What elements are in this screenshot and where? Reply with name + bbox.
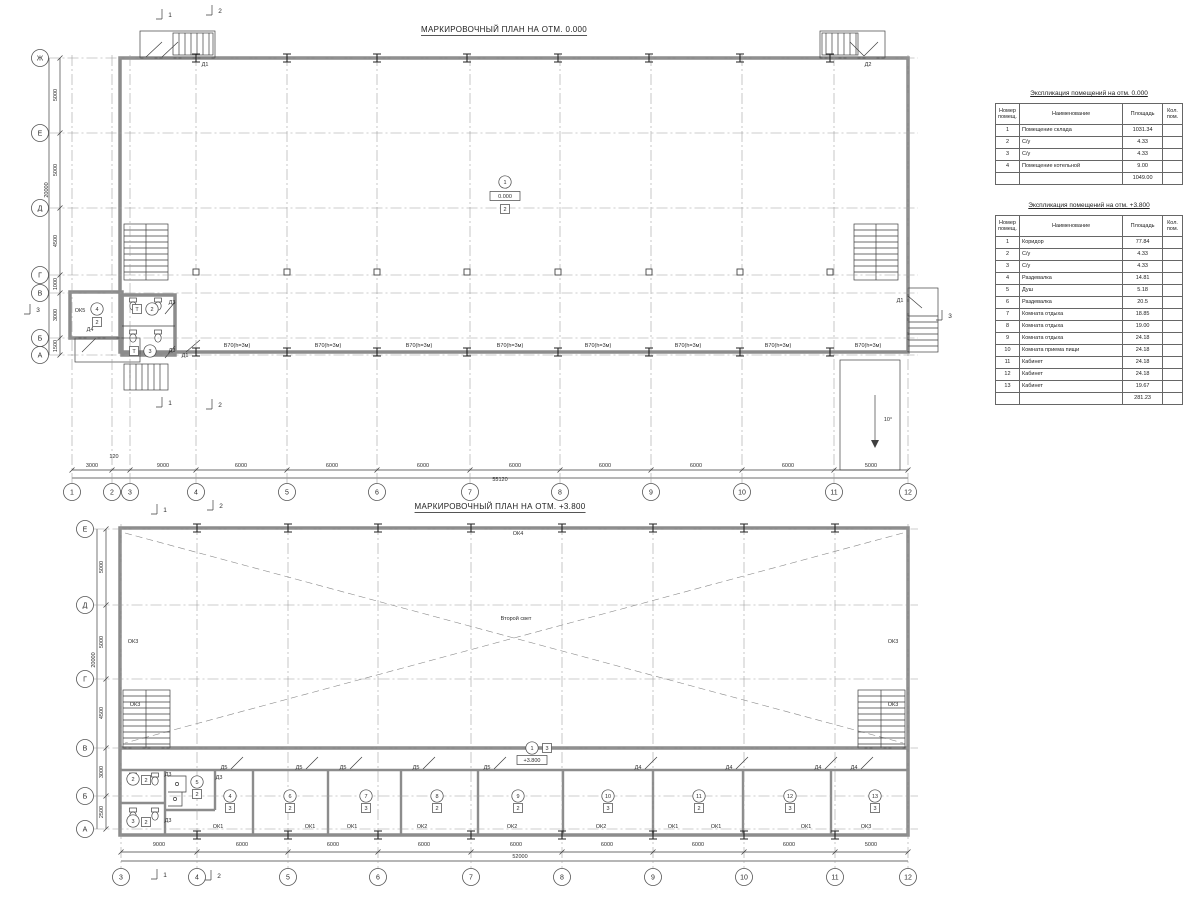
annotation: В70(h=3м) <box>585 343 612 349</box>
dim-label: 6000 <box>601 842 613 848</box>
type-label: 2 <box>195 792 198 798</box>
axis-label-Е: Е <box>83 527 88 534</box>
drawing-sheet: МАРКИРОВОЧНЫЙ ПЛАН НА ОТМ. 0.000 МАРКИРО… <box>0 0 1200 900</box>
type-label: 3 <box>228 806 231 812</box>
annotation: ОК4 <box>513 531 524 537</box>
annotation: Д4 <box>815 765 822 771</box>
table-cell: 9 <box>996 333 1020 345</box>
table-header: Площадь <box>1123 104 1163 125</box>
table-cell: Комната отдыха <box>1019 309 1122 321</box>
table-cell: 9.00 <box>1123 161 1163 173</box>
axis-label-11: 11 <box>830 490 837 497</box>
table-cell <box>1163 285 1183 297</box>
table-cell <box>1163 381 1183 393</box>
annotation: Д5 <box>413 765 420 771</box>
plan1-geometry <box>49 31 938 478</box>
table-cell: 5 <box>996 285 1020 297</box>
axis-label-7: 7 <box>468 490 472 497</box>
section-mark: 3 <box>948 313 952 320</box>
annotation: ОК1 <box>668 824 679 830</box>
table-row: 11Кабинет24.18 <box>996 357 1183 369</box>
axis-label-12: 12 <box>904 875 912 882</box>
table-header: Номер помещ. <box>996 216 1020 237</box>
axis-label-10: 10 <box>738 490 746 497</box>
annotation: Д3 <box>216 775 223 781</box>
annotation: ОК3 <box>861 824 872 830</box>
dim-label: 5000 <box>865 463 877 469</box>
table-cell <box>1163 149 1183 161</box>
table-cell <box>1163 309 1183 321</box>
table-cell <box>1163 321 1183 333</box>
axis-label-А: А <box>83 827 88 834</box>
axis-label-Д: Д <box>83 603 88 610</box>
room-tag: 8 <box>435 794 438 800</box>
dim-label: 6000 <box>509 463 521 469</box>
room-tag: 3 <box>131 819 134 825</box>
dim-label: 9000 <box>157 463 169 469</box>
table-header: Номер помещ. <box>996 104 1020 125</box>
table-cell: 1049.00 <box>1123 173 1163 185</box>
explication-table-0000: Экспликация помещений на отм. 0.000Номер… <box>995 90 1183 185</box>
type-label: 3 <box>606 806 609 812</box>
table-cell: 19.67 <box>1123 381 1163 393</box>
table-row: 2С/у4.33 <box>996 249 1183 261</box>
dim-label: 6000 <box>782 463 794 469</box>
table-header: Наименование <box>1019 104 1122 125</box>
table-cell: 24.18 <box>1123 369 1163 381</box>
table-header: Наименование <box>1019 216 1122 237</box>
type-label: 3 <box>545 746 548 752</box>
table-cell <box>1163 125 1183 137</box>
section-mark-flag <box>205 870 211 880</box>
table-cell <box>1163 393 1183 405</box>
type-label: 2 <box>144 778 147 784</box>
annotation: ОК3 <box>888 702 899 708</box>
table-cell <box>1163 357 1183 369</box>
axis-label-Б: Б <box>38 336 43 343</box>
annotation: В70(h=3м) <box>765 343 792 349</box>
axis-label-4: 4 <box>195 875 199 882</box>
annotation: В70(h=3м) <box>855 343 882 349</box>
table-title: Экспликация помещений на отм. 0.000 <box>995 90 1183 97</box>
dim-label: 4500 <box>99 707 105 719</box>
column-marker <box>737 269 743 275</box>
table-cell: Помещение котельной <box>1019 161 1122 173</box>
table-cell <box>1163 161 1183 173</box>
table-cell: Душ <box>1019 285 1122 297</box>
section-mark: 1 <box>168 400 172 407</box>
table-cell <box>1163 369 1183 381</box>
table-cell: 11 <box>996 357 1020 369</box>
table-row: 2С/у4.33 <box>996 137 1183 149</box>
table-row: 9Комната отдыха24.18 <box>996 333 1183 345</box>
axis-label-Е: Е <box>38 131 43 138</box>
axis-label-Г: Г <box>83 677 87 684</box>
room-tag: 3 <box>148 349 151 355</box>
annotation: Д3 <box>165 818 172 824</box>
dim-label: 6000 <box>326 463 338 469</box>
explication-table: Номер помещ.НаименованиеПлощадьКол. пом.… <box>995 215 1183 405</box>
dim-label: 55120 <box>492 477 507 483</box>
table-cell: 4.33 <box>1123 137 1163 149</box>
annotation: В70(h=3м) <box>675 343 702 349</box>
table-cell <box>1163 173 1183 185</box>
annotation: Д1 <box>202 62 209 68</box>
annotation: ОК3 <box>130 702 141 708</box>
table-row: 10Комната приема пищи24.18 <box>996 345 1183 357</box>
axis-label-Б: Б <box>83 794 88 801</box>
type-label: 3 <box>788 806 791 812</box>
type-label: 3 <box>364 806 367 812</box>
table-cell: 77.84 <box>1123 237 1163 249</box>
table-row: 1Коридор77.84 <box>996 237 1183 249</box>
room-tag: 1 <box>530 746 533 752</box>
table-cell: Раздевалка <box>1019 273 1122 285</box>
room-tag: 1 <box>503 180 506 186</box>
dim-label: 3000 <box>86 463 98 469</box>
table-cell: 2 <box>996 249 1020 261</box>
section-mark: 1 <box>163 507 167 514</box>
table-cell: Кабинет <box>1019 369 1122 381</box>
table-row: 13Кабинет19.67 <box>996 381 1183 393</box>
dim-label: 6000 <box>327 842 339 848</box>
dim-label: 20000 <box>91 652 97 667</box>
dim-label: 120 <box>109 454 118 460</box>
table-cell: 4.33 <box>1123 249 1163 261</box>
annotation: Д1 <box>897 298 904 304</box>
annotation: Второй свет <box>501 615 532 622</box>
axis-label-2: 2 <box>110 490 114 497</box>
type-label: 3 <box>873 806 876 812</box>
dim-label: 1500 <box>53 340 59 352</box>
type-label: 2 <box>503 207 506 213</box>
table-title: Экспликация помещений на отм. +3.800 <box>995 202 1183 209</box>
annotation: Д3 <box>165 772 172 778</box>
table-cell: 4.33 <box>1123 149 1163 161</box>
dim-label: 6000 <box>236 842 248 848</box>
room-tag: 9 <box>516 794 519 800</box>
table-cell: 3 <box>996 149 1020 161</box>
axis-label-9: 9 <box>649 490 653 497</box>
table-cell <box>1019 173 1122 185</box>
annotation: В70(h=3м) <box>315 343 342 349</box>
table-cell: С/у <box>1019 137 1122 149</box>
section-mark-flag <box>206 5 212 15</box>
table-cell: 6 <box>996 297 1020 309</box>
section-mark-flag <box>156 397 162 407</box>
axis-label-6: 6 <box>375 490 379 497</box>
dim-label: 6000 <box>783 842 795 848</box>
annotation: ОК1 <box>213 824 224 830</box>
table-cell: Раздевалка <box>1019 297 1122 309</box>
annotation: ОК1 <box>347 824 358 830</box>
table-row: 4Раздевалка14.81 <box>996 273 1183 285</box>
axis-label-8: 8 <box>558 490 562 497</box>
table-cell: С/у <box>1019 261 1122 273</box>
section-mark: 3 <box>36 307 40 314</box>
table-row: 3С/у4.33 <box>996 261 1183 273</box>
annotation: В70(h=3м) <box>406 343 433 349</box>
axis-label-3: 3 <box>128 490 132 497</box>
door-leaf <box>350 757 362 769</box>
type-label: 2 <box>697 806 700 812</box>
room-tag: 10 <box>605 794 611 800</box>
annotation: Д2 <box>865 62 872 68</box>
table-cell <box>1163 237 1183 249</box>
type-label: 2 <box>95 320 98 326</box>
annotation: ОК1 <box>801 824 812 830</box>
annotation: ОК5 <box>75 308 86 314</box>
column-marker <box>827 269 833 275</box>
annotation: ОК3 <box>888 639 899 645</box>
table-row: 4Помещение котельной9.00 <box>996 161 1183 173</box>
table-cell: 18.85 <box>1123 309 1163 321</box>
table-cell: 2 <box>996 137 1020 149</box>
section-mark: 1 <box>168 12 172 19</box>
axis-label-В: В <box>38 291 43 298</box>
axis-label-5: 5 <box>286 875 290 882</box>
room-tag: 4 <box>95 307 98 313</box>
dim-label: 6000 <box>235 463 247 469</box>
annotation: Д1 <box>182 353 189 359</box>
table-cell: 20.5 <box>1123 297 1163 309</box>
section-mark-flag <box>24 304 30 314</box>
annotation: Д3 <box>169 348 176 354</box>
type-label: 2 <box>516 806 519 812</box>
table-cell: 8 <box>996 321 1020 333</box>
table-cell: 24.18 <box>1123 333 1163 345</box>
section-mark-flag <box>156 9 162 19</box>
type-label: 2 <box>144 820 147 826</box>
table-cell: 4.33 <box>1123 261 1163 273</box>
section-mark-flag <box>936 310 942 320</box>
type-label: 2 <box>288 806 291 812</box>
door-leaf <box>494 757 506 769</box>
dim-label: 9000 <box>153 842 165 848</box>
dim-label: 3000 <box>99 766 105 778</box>
dim-label: 5000 <box>99 561 105 573</box>
door-leaf <box>736 757 748 769</box>
plan2-annotations: 3456789101112ЕДГВБА900060006000600060006… <box>77 500 919 886</box>
table-row: 281.23 <box>996 393 1183 405</box>
table-cell <box>1163 297 1183 309</box>
axis-label-Д: Д <box>38 206 43 213</box>
annotation: Д4 <box>635 765 642 771</box>
table-cell: С/у <box>1019 249 1122 261</box>
table-cell <box>1163 273 1183 285</box>
dim-label: 4500 <box>53 235 59 247</box>
explication-table: Номер помещ.НаименованиеПлощадьКол. пом.… <box>995 103 1183 185</box>
dim-label: 2500 <box>99 806 105 818</box>
dim-label: 3000 <box>53 309 59 321</box>
section-mark: 2 <box>219 503 223 510</box>
annotation: Д3 <box>169 300 176 306</box>
annotation: Д5 <box>221 765 228 771</box>
column-marker <box>374 269 380 275</box>
table-cell: 14.81 <box>1123 273 1163 285</box>
dim-label: 5000 <box>865 842 877 848</box>
room-tag: 6 <box>288 794 291 800</box>
axis-label-9: 9 <box>651 875 655 882</box>
section-mark-flag <box>207 500 213 510</box>
room-tag: 5 <box>195 780 198 786</box>
room-tag: 4 <box>228 794 231 800</box>
table-row: 1Помещение склада1031.34 <box>996 125 1183 137</box>
plan1-annotations: 123456789101112ЖЕДГВБА300012090006000600… <box>24 5 952 501</box>
dim-label: 5000 <box>53 164 59 176</box>
table-cell: 4 <box>996 273 1020 285</box>
room-tag: 7 <box>364 794 367 800</box>
door-leaf <box>231 757 243 769</box>
table-cell: 1 <box>996 125 1020 137</box>
room-tag: 2 <box>131 777 134 783</box>
annotation: ОК1 <box>711 824 722 830</box>
room-tag: 13 <box>872 794 878 800</box>
column-marker <box>284 269 290 275</box>
axis-label-5: 5 <box>285 490 289 497</box>
table-cell <box>1163 249 1183 261</box>
table-cell <box>996 173 1020 185</box>
axis-label-1: 1 <box>70 490 74 497</box>
explication-table-3800: Экспликация помещений на отм. +3.800Номе… <box>995 202 1183 405</box>
table-cell: Коридор <box>1019 237 1122 249</box>
table-cell: 5.18 <box>1123 285 1163 297</box>
section-mark: 2 <box>218 402 222 409</box>
annotation: Д5 <box>484 765 491 771</box>
section-mark-flag <box>151 869 157 879</box>
dim-label: 5000 <box>99 636 105 648</box>
room-tag: 12 <box>787 794 793 800</box>
table-row: 1049.00 <box>996 173 1183 185</box>
dim-label: 6000 <box>692 842 704 848</box>
annotation: В70(h=3м) <box>497 343 524 349</box>
axis-label-6: 6 <box>376 875 380 882</box>
door-leaf <box>306 757 318 769</box>
dim-label: 5000 <box>53 89 59 101</box>
dim-label: 1000 <box>53 278 59 290</box>
column-marker <box>464 269 470 275</box>
axis-label-А: А <box>38 353 43 360</box>
door-leaf <box>423 757 435 769</box>
column-marker <box>646 269 652 275</box>
table-cell: Комната отдыха <box>1019 321 1122 333</box>
table-row: 6Раздевалка20.5 <box>996 297 1183 309</box>
table-cell: 1 <box>996 237 1020 249</box>
annotation: Д4 <box>726 765 733 771</box>
section-mark-flag <box>206 399 212 409</box>
table-row: 7Комната отдыха18.85 <box>996 309 1183 321</box>
table-cell: 10 <box>996 345 1020 357</box>
table-cell <box>1019 393 1122 405</box>
level-label: +3.800 <box>524 758 541 764</box>
table-cell: 7 <box>996 309 1020 321</box>
table-cell: 281.23 <box>1123 393 1163 405</box>
type-label: 2 <box>435 806 438 812</box>
table-cell: 24.18 <box>1123 357 1163 369</box>
table-cell: 24.18 <box>1123 345 1163 357</box>
table-cell: Комната отдыха <box>1019 333 1122 345</box>
column-marker <box>555 269 561 275</box>
section-mark: 2 <box>217 873 221 880</box>
axis-label-10: 10 <box>740 875 748 882</box>
table-cell <box>1163 137 1183 149</box>
annotation: Д5 <box>340 765 347 771</box>
annotation: 10° <box>884 417 892 423</box>
axis-label-4: 4 <box>194 490 198 497</box>
table-cell: 4 <box>996 161 1020 173</box>
table-row: 3С/у4.33 <box>996 149 1183 161</box>
table-row: 12Кабинет24.18 <box>996 369 1183 381</box>
annotation: Д4 <box>87 327 94 333</box>
table-cell: Кабинет <box>1019 357 1122 369</box>
annotation: ОК2 <box>417 824 428 830</box>
room-tag: 2 <box>150 307 153 313</box>
table-cell: Комната приема пищи <box>1019 345 1122 357</box>
axis-label-8: 8 <box>560 875 564 882</box>
annotation: Д4 <box>851 765 858 771</box>
door-leaf <box>645 757 657 769</box>
section-mark: 1 <box>163 872 167 879</box>
table-cell: 13 <box>996 381 1020 393</box>
dim-label: 6000 <box>418 842 430 848</box>
table-cell <box>996 393 1020 405</box>
section-mark: 2 <box>218 8 222 15</box>
level-label: 0.000 <box>498 194 512 200</box>
table-cell: 19.00 <box>1123 321 1163 333</box>
table-row: 5Душ5.18 <box>996 285 1183 297</box>
axis-label-В: В <box>83 746 88 753</box>
axis-label-7: 7 <box>469 875 473 882</box>
annotation: ОК1 <box>305 824 316 830</box>
dim-label: 6000 <box>599 463 611 469</box>
dim-label: 52000 <box>512 854 527 860</box>
table-cell: Кабинет <box>1019 381 1122 393</box>
dim-label: 6000 <box>510 842 522 848</box>
dim-label: 6000 <box>690 463 702 469</box>
table-cell: 12 <box>996 369 1020 381</box>
table-cell: 1031.34 <box>1123 125 1163 137</box>
room-tag: 11 <box>696 794 702 800</box>
axis-label-12: 12 <box>904 490 912 497</box>
axis-label-Г: Г <box>38 273 42 280</box>
column-marker <box>193 269 199 275</box>
table-header: Кол. пом. <box>1163 104 1183 125</box>
table-cell: 3 <box>996 261 1020 273</box>
annotation: ОК3 <box>128 639 139 645</box>
table-cell: Помещение склада <box>1019 125 1122 137</box>
section-mark-flag <box>151 504 157 514</box>
annotation: Д5 <box>296 765 303 771</box>
axis-label-Ж: Ж <box>37 56 44 63</box>
table-cell <box>1163 333 1183 345</box>
axis-label-11: 11 <box>831 875 838 882</box>
annotation: ОК2 <box>596 824 607 830</box>
axis-label-3: 3 <box>119 875 123 882</box>
door-leaf <box>861 757 873 769</box>
dim-label: 20000 <box>44 182 50 197</box>
table-header: Кол. пом. <box>1163 216 1183 237</box>
table-cell <box>1163 345 1183 357</box>
table-header: Площадь <box>1123 216 1163 237</box>
dim-label: 6000 <box>417 463 429 469</box>
table-cell: С/у <box>1019 149 1122 161</box>
annotation: В70(h=3м) <box>224 343 251 349</box>
annotation: ОК2 <box>507 824 518 830</box>
table-row: 8Комната отдыха19.00 <box>996 321 1183 333</box>
table-cell <box>1163 261 1183 273</box>
